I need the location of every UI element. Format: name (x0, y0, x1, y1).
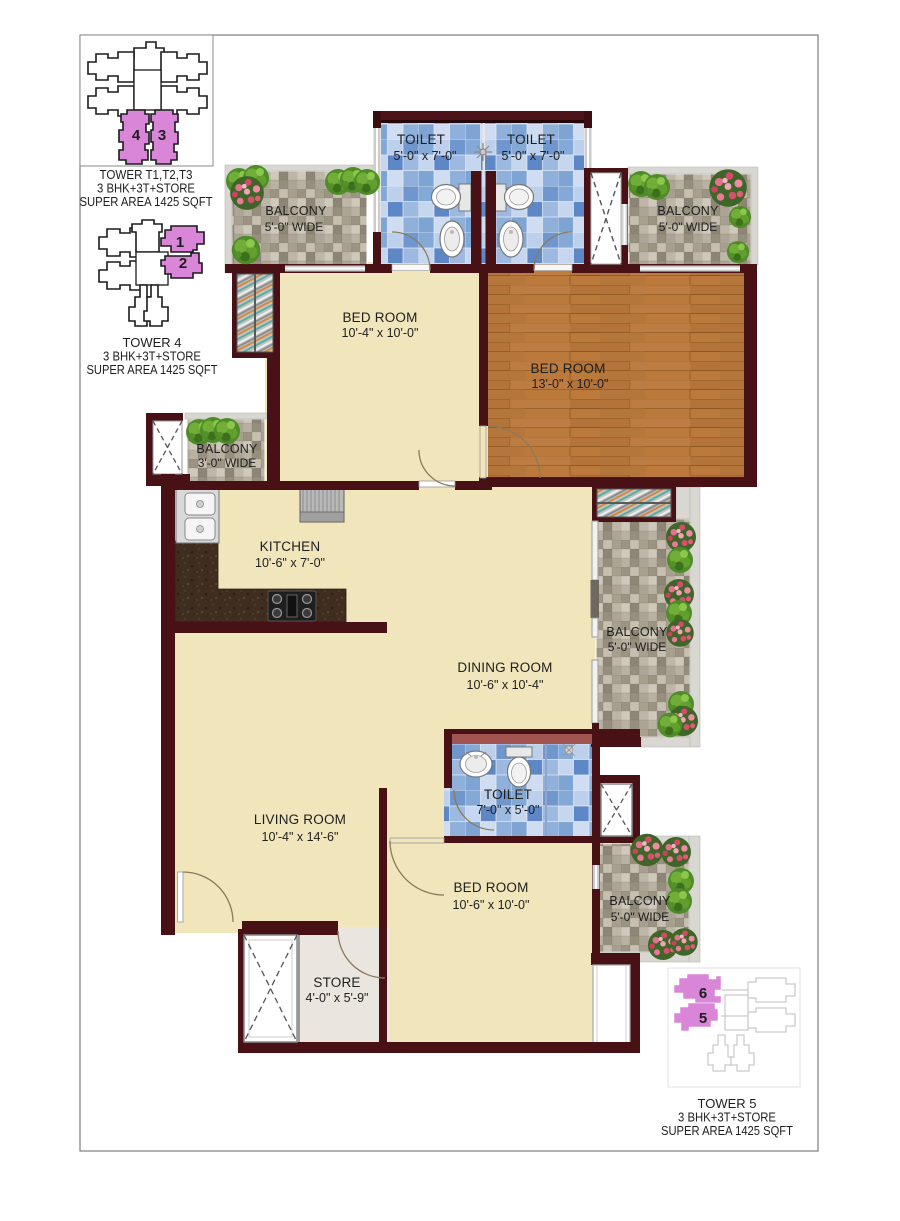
svg-text:BALCONY: BALCONY (606, 625, 668, 639)
svg-text:2: 2 (179, 255, 187, 272)
svg-text:SUPER AREA 1425 SQFT: SUPER AREA 1425 SQFT (87, 362, 218, 377)
svg-text:13'-0" x 10'-0": 13'-0" x 10'-0" (532, 377, 609, 391)
svg-text:3: 3 (158, 127, 166, 144)
svg-text:10'-6" x 7'-0": 10'-6" x 7'-0" (255, 556, 325, 570)
svg-text:3'-0" WIDE: 3'-0" WIDE (198, 456, 257, 470)
svg-text:5'-0" x 7'-0": 5'-0" x 7'-0" (394, 149, 457, 163)
svg-text:10'-4" x 10'-0": 10'-4" x 10'-0" (342, 326, 419, 340)
svg-text:SUPER AREA 1425 SQFT: SUPER AREA 1425 SQFT (661, 1123, 793, 1138)
svg-text:10'-6" x 10'-4": 10'-6" x 10'-4" (467, 678, 544, 692)
svg-text:5'-0" WIDE: 5'-0" WIDE (659, 220, 718, 234)
svg-text:BALCONY: BALCONY (657, 204, 719, 218)
svg-text:1: 1 (176, 234, 184, 251)
svg-text:TOILET: TOILET (507, 132, 555, 147)
svg-text:6: 6 (699, 985, 707, 1002)
svg-text:STORE: STORE (313, 975, 360, 990)
svg-text:BED ROOM: BED ROOM (453, 880, 528, 895)
svg-text:10'-4" x 14'-6": 10'-4" x 14'-6" (262, 830, 339, 844)
svg-text:BED ROOM: BED ROOM (530, 361, 605, 376)
svg-text:BALCONY: BALCONY (196, 442, 258, 456)
svg-text:BALCONY: BALCONY (265, 204, 327, 218)
svg-text:TOILET: TOILET (484, 787, 532, 802)
svg-text:4'-0" x 5'-9": 4'-0" x 5'-9" (306, 991, 369, 1005)
svg-text:5: 5 (699, 1010, 707, 1027)
svg-text:KITCHEN: KITCHEN (260, 539, 321, 554)
svg-text:SUPER AREA 1425 SQFT: SUPER AREA 1425 SQFT (80, 194, 213, 209)
svg-text:5'-0" WIDE: 5'-0" WIDE (608, 640, 667, 654)
svg-text:5'-0" x 7'-0": 5'-0" x 7'-0" (502, 149, 565, 163)
svg-text:BALCONY: BALCONY (609, 894, 671, 908)
svg-text:4: 4 (132, 127, 141, 144)
svg-text:DINING ROOM: DINING ROOM (457, 660, 552, 675)
svg-text:5'-0" WIDE: 5'-0" WIDE (611, 910, 670, 924)
svg-text:BED ROOM: BED ROOM (342, 310, 417, 325)
svg-text:TOILET: TOILET (397, 132, 445, 147)
svg-text:10'-6" x 10'-0": 10'-6" x 10'-0" (453, 898, 530, 912)
svg-text:LIVING ROOM: LIVING ROOM (254, 812, 346, 827)
svg-text:7'-0" x 5'-0": 7'-0" x 5'-0" (477, 803, 540, 817)
svg-text:5'-0" WIDE: 5'-0" WIDE (265, 220, 324, 234)
